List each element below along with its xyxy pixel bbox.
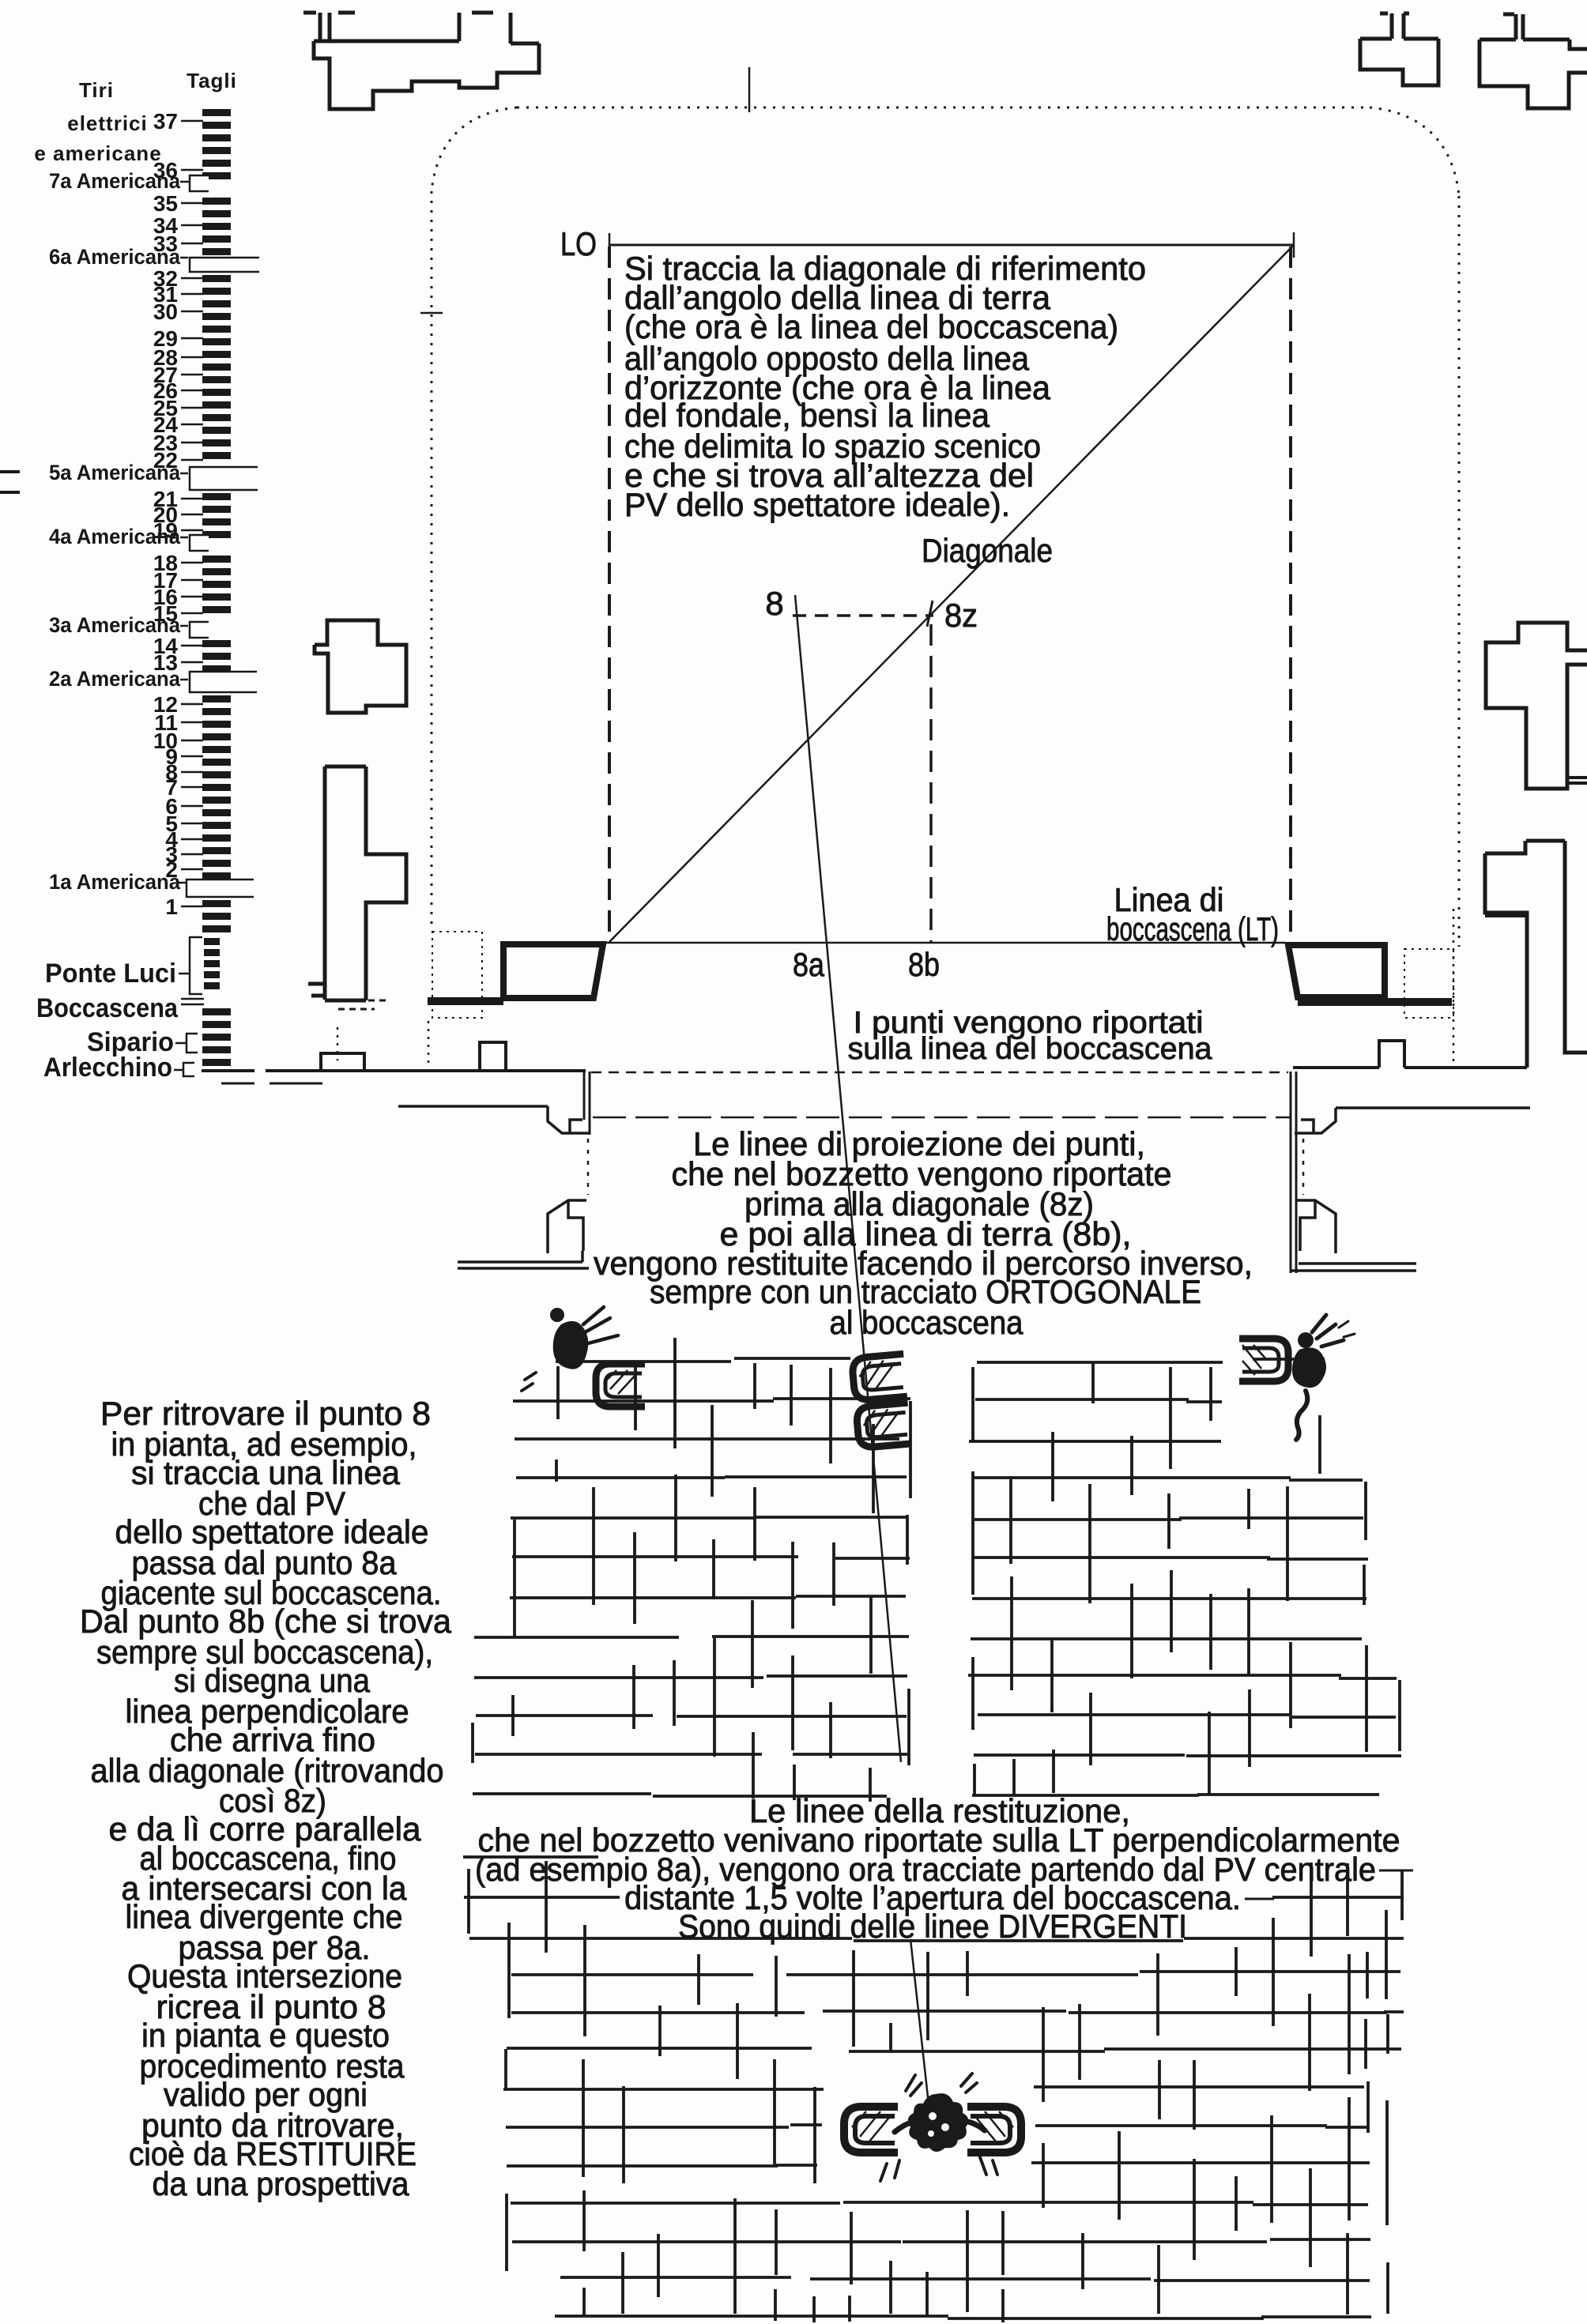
svg-text:Tiri: Tiri [79,78,114,102]
svg-text:Arlecchino: Arlecchino [43,1053,172,1083]
svg-text:8z: 8z [944,597,978,634]
svg-text:e americane: e americane [34,141,161,165]
svg-text:1: 1 [165,895,178,919]
svg-text:Ponte Luci: Ponte Luci [45,959,176,989]
svg-text:37: 37 [153,109,178,134]
svg-text:5a Americana: 5a Americana [49,461,181,484]
svg-text:3a Americana: 3a Americana [49,613,181,637]
svg-text:Sono quindi delle linee DIVERG: Sono quindi delle linee DIVERGENTI [678,1908,1187,1945]
svg-text:1a Americana: 1a Americana [49,870,181,894]
svg-text:Boccascena: Boccascena [36,993,179,1023]
svg-text:boccascena (LT): boccascena (LT) [1106,910,1279,947]
svg-text:sulla linea del boccascena: sulla linea del boccascena [848,1032,1212,1066]
svg-text:35: 35 [153,191,178,216]
svg-text:30: 30 [153,299,178,324]
svg-text:Tagli: Tagli [187,69,237,92]
svg-text:8a: 8a [793,946,825,983]
svg-text:8: 8 [765,585,783,622]
svg-text:8b: 8b [908,946,940,983]
svg-text:PV dello spettatore ideale).: PV dello spettatore ideale). [624,486,1010,523]
svg-text:al boccascena: al boccascena [830,1304,1024,1341]
svg-text:4a Americana: 4a Americana [49,525,181,548]
svg-text:2a Americana: 2a Americana [49,667,181,691]
svg-text:7a Americana: 7a Americana [49,169,181,193]
svg-text:elettrici: elettrici [67,111,148,135]
svg-text:LO: LO [560,225,597,262]
svg-text:6a Americana: 6a Americana [49,245,181,269]
svg-text:da una prospettiva: da una prospettiva [153,2165,410,2202]
svg-text:Diagonale: Diagonale [922,532,1053,569]
